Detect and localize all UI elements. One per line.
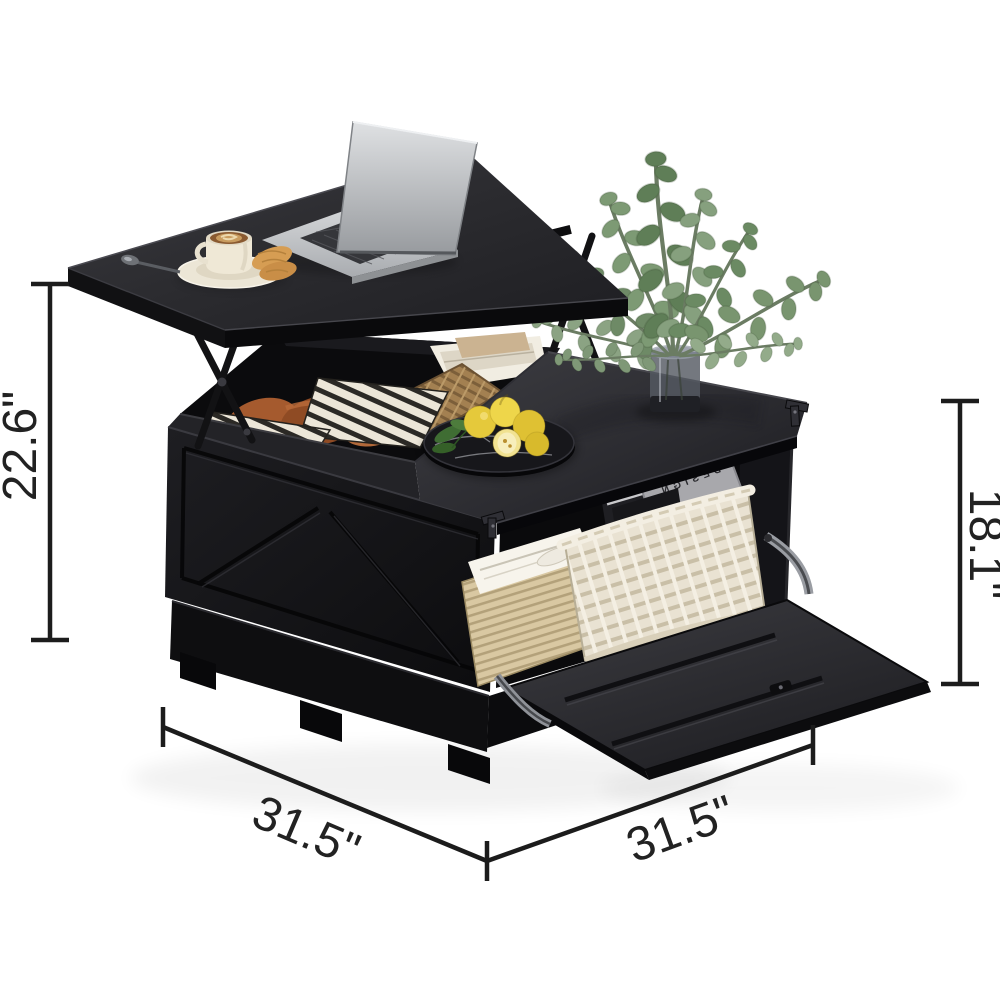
dimension-height-left: 22.6" — [0, 284, 69, 640]
product-illustration: ARCHITEKTURA D E S I G N domus — [0, 0, 1000, 1000]
ground-shadow — [130, 744, 960, 812]
dimension-height-right: 18.1" — [941, 401, 1000, 684]
dimension-label-overall-height: 22.6" — [0, 391, 47, 501]
laptop-screen — [337, 122, 477, 255]
dimension-label-cabinet-height: 18.1" — [959, 489, 1000, 599]
coffee-table: ARCHITEKTURA D E S I G N domus — [68, 122, 931, 784]
product-figure: ARCHITEKTURA D E S I G N domus — [0, 0, 1000, 1000]
